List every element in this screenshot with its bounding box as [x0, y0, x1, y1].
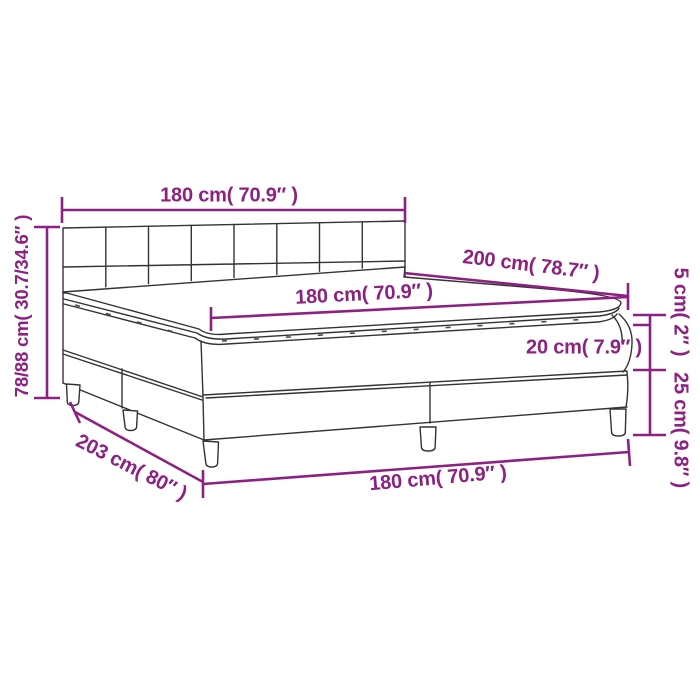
base-bottom-edge [63, 383, 627, 440]
box-base [63, 350, 628, 440]
leg-4 [420, 427, 436, 451]
label-base-length: 203 cm( 80″ ) [72, 430, 190, 505]
label-headboard-height: 78/88 cm( 30.7/34.6″ ) [11, 215, 32, 397]
mattress-front-corner-edge [201, 341, 203, 396]
label-headboard-width: 180 cm( 70.9″ ) [160, 184, 298, 206]
label-bed-length: 200 cm( 78.7″ ) [461, 246, 600, 285]
dim-line-headboard-height [34, 227, 60, 398]
base-corner-edge [203, 397, 204, 440]
leg-3 [203, 441, 219, 467]
label-mattress-height: 20 cm( 7.9″ ) [526, 336, 642, 358]
dim-line-heights-right [633, 315, 666, 435]
label-topper-height: 5 cm( 2″ ) [670, 268, 692, 357]
base-right-edge [626, 372, 628, 407]
bed-dimension-diagram: 180 cm( 70.9″ ) 78/88 cm( 30.7/34.6″ ) 2… [0, 0, 700, 700]
base-top-seam-b [63, 354, 627, 400]
leg-2 [123, 410, 138, 431]
label-base-width: 180 cm( 70.9″ ) [368, 461, 507, 495]
leg-5 [610, 409, 626, 436]
diagram-canvas: 180 cm( 70.9″ ) 78/88 cm( 30.7/34.6″ ) 2… [0, 0, 700, 700]
leg-1 [67, 384, 81, 406]
label-base-height: 25 cm( 9.8″ ) [670, 372, 692, 488]
